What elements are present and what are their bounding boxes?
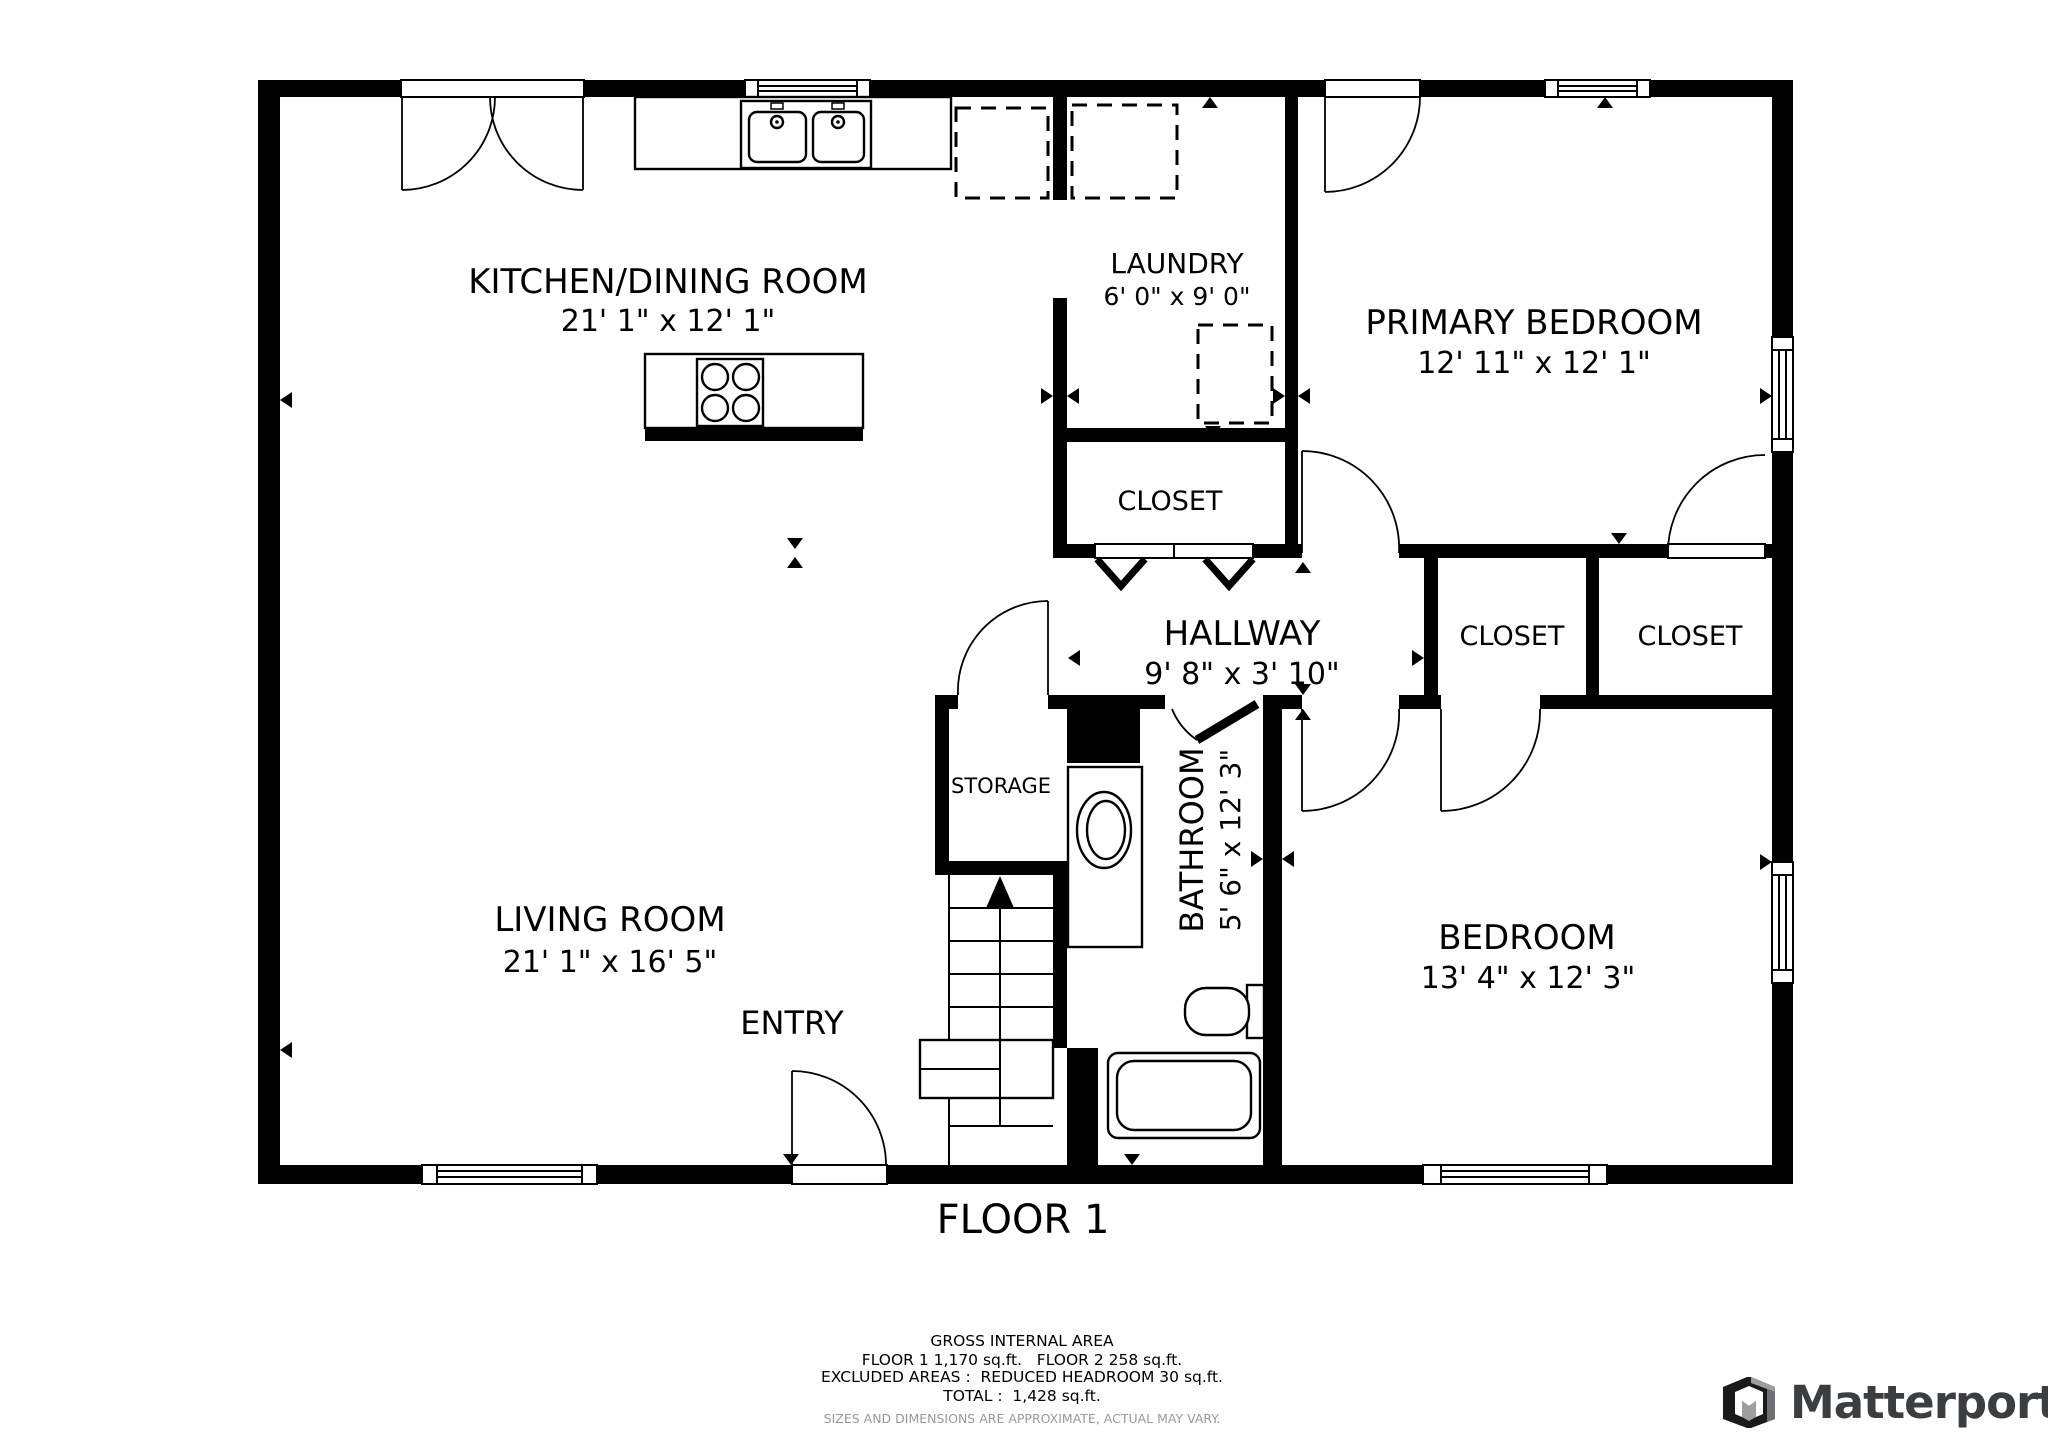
bedroom-closet-door bbox=[1441, 709, 1540, 811]
room-dims-primary-bedroom: 12' 11" x 12' 1" bbox=[1417, 346, 1651, 381]
area-summary-line3: TOTAL : 1,428 sq.ft. bbox=[942, 1387, 1101, 1405]
area-summary-line2: EXCLUDED AREAS : REDUCED HEADROOM 30 sq.… bbox=[821, 1368, 1223, 1386]
area-disclaimer: SIZES AND DIMENSIONS ARE APPROXIMATE, AC… bbox=[824, 1411, 1221, 1426]
bedroom-bottom-window bbox=[1423, 1165, 1607, 1184]
bedroom-door bbox=[1302, 709, 1399, 811]
room-label-living-room: LIVING ROOM bbox=[494, 900, 725, 940]
appliance-box-kitchen bbox=[956, 108, 1048, 198]
room-dims-bathroom: 5' 6" x 12' 3" bbox=[1214, 749, 1247, 931]
laundry-side-window bbox=[1545, 80, 1650, 97]
room-label-entry: ENTRY bbox=[740, 1004, 844, 1042]
room-label-primary-bedroom: PRIMARY BEDROOM bbox=[1365, 303, 1702, 343]
laundry-closet-bifold-doors bbox=[1095, 544, 1253, 586]
matterport-logo-icon bbox=[1723, 1377, 1775, 1428]
washer-box bbox=[1198, 325, 1272, 423]
room-label-bedroom: BEDROOM bbox=[1438, 918, 1615, 958]
floor-plan-page: KITCHEN/DINING ROOM 21' 1" x 12' 1" LAUN… bbox=[0, 0, 2048, 1448]
kitchen-counter bbox=[635, 97, 951, 169]
room-label-bathroom: BATHROOM bbox=[1173, 747, 1211, 932]
plan-footer-text: FLOOR 1 GROSS INTERNAL AREA FLOOR 1 1,17… bbox=[821, 1197, 1223, 1426]
room-dims-living-room: 21' 1" x 16' 5" bbox=[503, 945, 718, 980]
bedroom-side-window bbox=[1772, 862, 1793, 983]
area-summary-line1: FLOOR 1 1,170 sq.ft. FLOOR 2 258 sq.ft. bbox=[862, 1351, 1182, 1369]
storage-door bbox=[958, 601, 1048, 695]
bathtub bbox=[1108, 1053, 1260, 1138]
room-dims-kitchen-dining: 21' 1" x 12' 1" bbox=[561, 304, 776, 339]
french-doors bbox=[401, 80, 584, 190]
room-label-laundry-closet: CLOSET bbox=[1118, 486, 1223, 517]
living-room-window bbox=[422, 1165, 597, 1184]
room-label-kitchen-dining: KITCHEN/DINING ROOM bbox=[468, 262, 868, 302]
room-dims-bedroom: 13' 4" x 12' 3" bbox=[1421, 961, 1636, 996]
primary-bedroom-door bbox=[1302, 451, 1399, 553]
room-label-laundry: LAUNDRY bbox=[1110, 247, 1244, 280]
staircase bbox=[920, 875, 1053, 1165]
room-label-storage: STORAGE bbox=[951, 774, 1051, 798]
entry-door bbox=[792, 1071, 887, 1184]
room-dims-hallway: 9' 8" x 3' 10" bbox=[1144, 657, 1339, 692]
matterport-branding: Matterport bbox=[1723, 1376, 2048, 1429]
primary-closet-door bbox=[1668, 455, 1765, 558]
appliance-box-laundry bbox=[1072, 105, 1177, 198]
matterport-logo-text: Matterport bbox=[1790, 1376, 2048, 1429]
primary-bedroom-window bbox=[1772, 337, 1793, 452]
kitchen-island bbox=[645, 354, 863, 441]
floor-title: FLOOR 1 bbox=[937, 1197, 1110, 1243]
toilet bbox=[1185, 985, 1264, 1038]
kitchen-window bbox=[745, 80, 870, 97]
room-label-hallway: HALLWAY bbox=[1164, 614, 1321, 654]
vanity-sink bbox=[1068, 767, 1142, 947]
bathroom-door bbox=[1172, 704, 1257, 740]
stove bbox=[697, 359, 763, 426]
primary-exterior-door bbox=[1325, 80, 1420, 192]
room-label-closet-right: CLOSET bbox=[1638, 621, 1743, 652]
room-label-closet-left: CLOSET bbox=[1460, 621, 1565, 652]
area-summary-title: GROSS INTERNAL AREA bbox=[930, 1332, 1114, 1350]
floor-plan-canvas: KITCHEN/DINING ROOM 21' 1" x 12' 1" LAUN… bbox=[0, 0, 2048, 1448]
room-dims-laundry: 6' 0" x 9' 0" bbox=[1104, 282, 1251, 311]
